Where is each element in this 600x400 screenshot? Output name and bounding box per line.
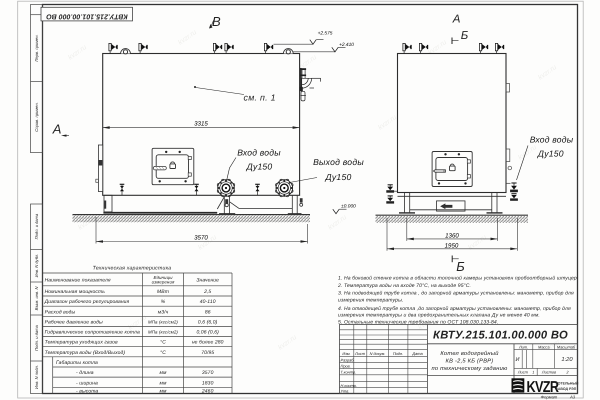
svg-text:измерения температуры.: измерения температуры. xyxy=(338,298,403,304)
svg-text:измерения температуры и два пр: измерения температуры и два предохраните… xyxy=(338,313,540,319)
svg-text:Разраб.: Разраб. xyxy=(341,358,355,363)
svg-text:Б: Б xyxy=(456,259,465,274)
svg-text:Температура уходящих газов: Температура уходящих газов xyxy=(45,340,118,346)
svg-text:Ду150: Ду150 xyxy=(246,162,273,172)
svg-text:2460: 2460 xyxy=(201,388,214,394)
svg-text:А3: А3 xyxy=(569,395,576,400)
svg-text:40-110: 40-110 xyxy=(200,299,216,305)
svg-text:3315: 3315 xyxy=(194,120,208,127)
svg-text:1830: 1830 xyxy=(202,380,214,386)
svg-text:°С: °С xyxy=(160,350,166,356)
svg-text:Выход воды: Выход воды xyxy=(313,157,364,167)
svg-text:1: 1 xyxy=(532,370,534,375)
svg-text:Номинальная мощность: Номинальная мощность xyxy=(45,289,106,295)
svg-text:Изм.: Изм. xyxy=(342,351,350,356)
svg-text:1. На боковой стенке котла в: 1. На боковой стенке котла в области топ… xyxy=(338,275,577,281)
svg-text:2,5: 2,5 xyxy=(203,289,211,295)
svg-text:±0.000: ±0.000 xyxy=(341,204,356,210)
svg-text:- высота: - высота xyxy=(76,388,98,394)
svg-text:2. Температура воды на входе: 2. Температура воды на входе 70°С, на вы… xyxy=(337,283,471,289)
svg-text:+2.575: +2.575 xyxy=(318,30,333,36)
svg-text:МПа (кгс/см2): МПа (кгс/см2) xyxy=(148,319,178,324)
svg-text:3570: 3570 xyxy=(194,234,208,241)
svg-text:Гидравлическое сопротивление к: Гидравлическое сопротивление котла xyxy=(45,330,140,336)
svg-text:Лит.: Лит. xyxy=(518,345,528,350)
svg-text:мм: мм xyxy=(159,388,167,394)
svg-text:%: % xyxy=(161,299,166,305)
svg-text:Подп. и дата: Подп. и дата xyxy=(34,213,39,239)
svg-text:КОТЕЛЬНЫЙ: КОТЕЛЬНЫЙ xyxy=(556,381,579,386)
svg-text:Т.контр.: Т.контр. xyxy=(341,370,357,375)
svg-text:измерения: измерения xyxy=(152,279,175,284)
svg-text:86: 86 xyxy=(205,309,211,315)
svg-text:Техническая характеристика: Техническая характеристика xyxy=(93,265,172,271)
svg-text:Вход воды: Вход воды xyxy=(237,148,281,158)
svg-text:А: А xyxy=(452,14,461,26)
svg-text:KVZR: KVZR xyxy=(527,379,560,396)
svg-text:Справ. примен.: Справ. примен. xyxy=(34,102,39,131)
svg-text:0,06 (0,6): 0,06 (0,6) xyxy=(196,330,219,336)
svg-text:Рабочее давление воды: Рабочее давление воды xyxy=(45,319,103,325)
svg-text:Температура воды (Вход/Выход): Температура воды (Вход/Выход) xyxy=(45,350,126,356)
svg-text:Ду150: Ду150 xyxy=(537,149,564,159)
svg-text:Диапазон рабочего регулировани: Диапазон рабочего регулирования xyxy=(44,299,130,305)
svg-text:Подп. и дата: Подп. и дата xyxy=(34,324,39,350)
svg-text:Наименование показателя: Наименование показателя xyxy=(45,278,111,284)
svg-text:мм: мм xyxy=(159,380,167,386)
svg-text:3570: 3570 xyxy=(202,370,214,376)
svg-text:м3/ч: м3/ч xyxy=(158,309,169,315)
svg-text:Листов: Листов xyxy=(541,370,556,375)
svg-text:1950: 1950 xyxy=(445,242,459,249)
svg-text:Инв. N подл.: Инв. N подл. xyxy=(34,365,39,389)
svg-text:- длина: - длина xyxy=(76,370,94,376)
svg-text:А: А xyxy=(52,122,62,137)
svg-text:4. На отводящей трубе котла ,: 4. На отводящей трубе котла ,до запорной… xyxy=(338,306,571,312)
svg-text:+2.410: +2.410 xyxy=(339,42,354,48)
svg-text:Утв.: Утв. xyxy=(341,389,350,394)
svg-text:Расход воды: Расход воды xyxy=(45,309,76,315)
svg-text:Взам. инв. N: Взам. инв. N xyxy=(34,287,39,311)
svg-text:1360: 1360 xyxy=(445,232,459,239)
svg-text:70/95: 70/95 xyxy=(201,350,214,356)
svg-text:1:20: 1:20 xyxy=(561,356,573,363)
svg-text:Лист: Лист xyxy=(354,351,366,356)
svg-text:0,6 (6,0): 0,6 (6,0) xyxy=(198,319,218,325)
svg-text:КВ -2,5 КБ (РВР): КВ -2,5 КБ (РВР) xyxy=(446,358,494,365)
svg-text:Вход воды: Вход воды xyxy=(530,135,574,145)
svg-text:Инв. N дубл.: Инв. N дубл. xyxy=(34,254,39,278)
svg-text:не более 280: не более 280 xyxy=(192,340,224,346)
svg-text:Масса: Масса xyxy=(538,345,550,350)
svg-text:Подп.: Подп. xyxy=(393,351,403,356)
svg-text:- ширина: - ширина xyxy=(76,380,98,386)
svg-text:см. п. 1: см. п. 1 xyxy=(244,93,276,103)
svg-text:ЗАВОД РЭП: ЗАВОД РЭП xyxy=(556,387,577,391)
svg-text:N докум.: N докум. xyxy=(370,351,386,356)
svg-text:Значение: Значение xyxy=(196,278,219,284)
svg-text:по техническому заданию: по техническому заданию xyxy=(431,365,507,372)
svg-text:Масштаб: Масштаб xyxy=(557,345,576,350)
svg-text:Габариты котла: Габариты котла xyxy=(56,360,98,366)
svg-text:МВт: МВт xyxy=(157,289,169,295)
svg-text:Перв. примен.: Перв. примен. xyxy=(34,34,39,61)
svg-text:Ду150: Ду150 xyxy=(324,172,351,182)
svg-text:°С: °С xyxy=(160,340,166,346)
svg-text:мм: мм xyxy=(159,370,167,376)
svg-text:Дата: Дата xyxy=(411,351,423,356)
svg-text:МПа (кгс/см2): МПа (кгс/см2) xyxy=(148,330,178,335)
svg-text:Котел водогрейный: Котел водогрейный xyxy=(440,350,499,357)
svg-text:Б: Б xyxy=(461,30,469,42)
svg-text:Лист: Лист xyxy=(517,370,529,375)
svg-text:Пров.: Пров. xyxy=(341,363,351,368)
svg-text:КВТУ.215.101.00.000 ВО: КВТУ.215.101.00.000 ВО xyxy=(46,13,128,20)
svg-text:КВТУ.215.101.00.000 ВО: КВТУ.215.101.00.000 ВО xyxy=(433,330,568,342)
svg-text:Н.контр.: Н.контр. xyxy=(341,383,357,388)
svg-text:И: И xyxy=(516,357,520,363)
svg-text:3. На подводящей трубе котла: 3. На подводящей трубе котла , до запорн… xyxy=(338,290,574,296)
